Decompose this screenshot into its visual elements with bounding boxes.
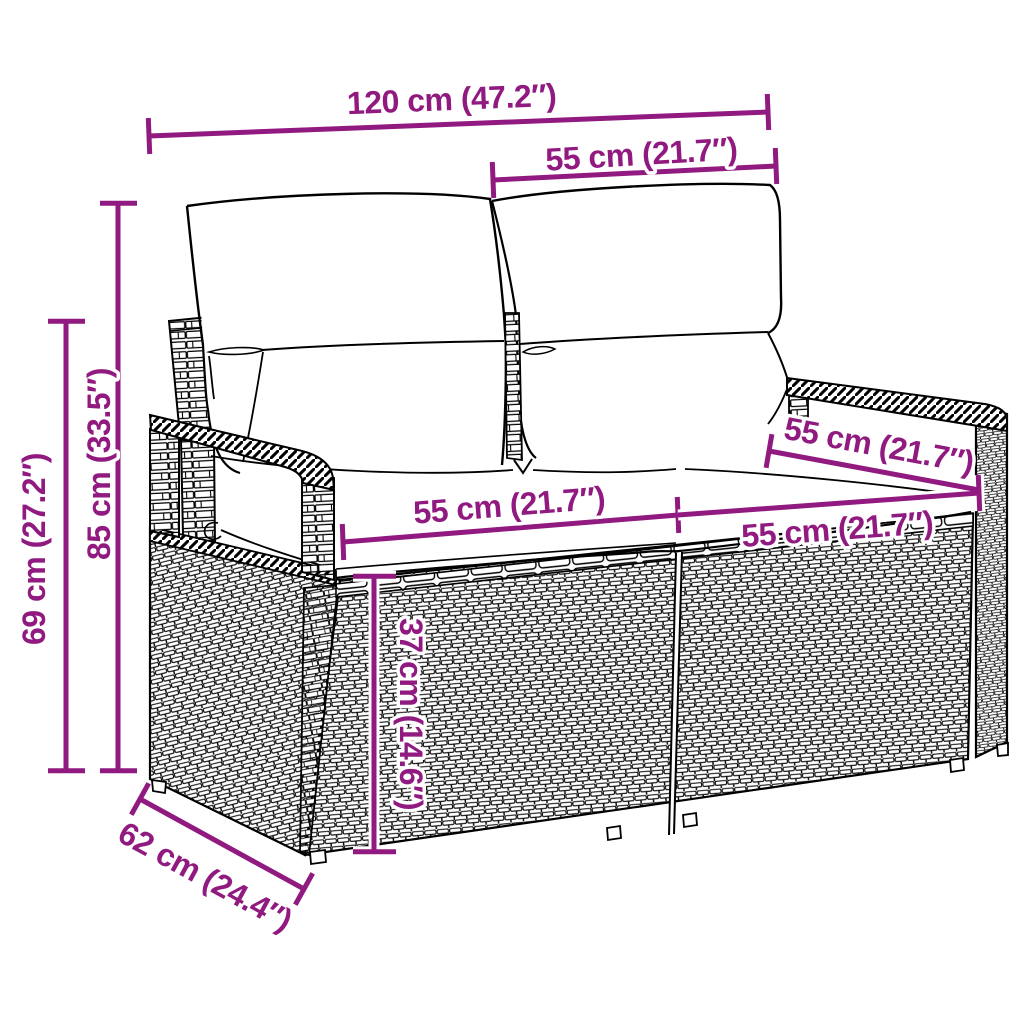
- svg-text:85 cm (33.5″): 85 cm (33.5″): [81, 368, 117, 560]
- svg-text:69 cm (27.2″): 69 cm (27.2″): [16, 453, 52, 645]
- svg-text:37 cm (14.6″): 37 cm (14.6″): [393, 618, 429, 810]
